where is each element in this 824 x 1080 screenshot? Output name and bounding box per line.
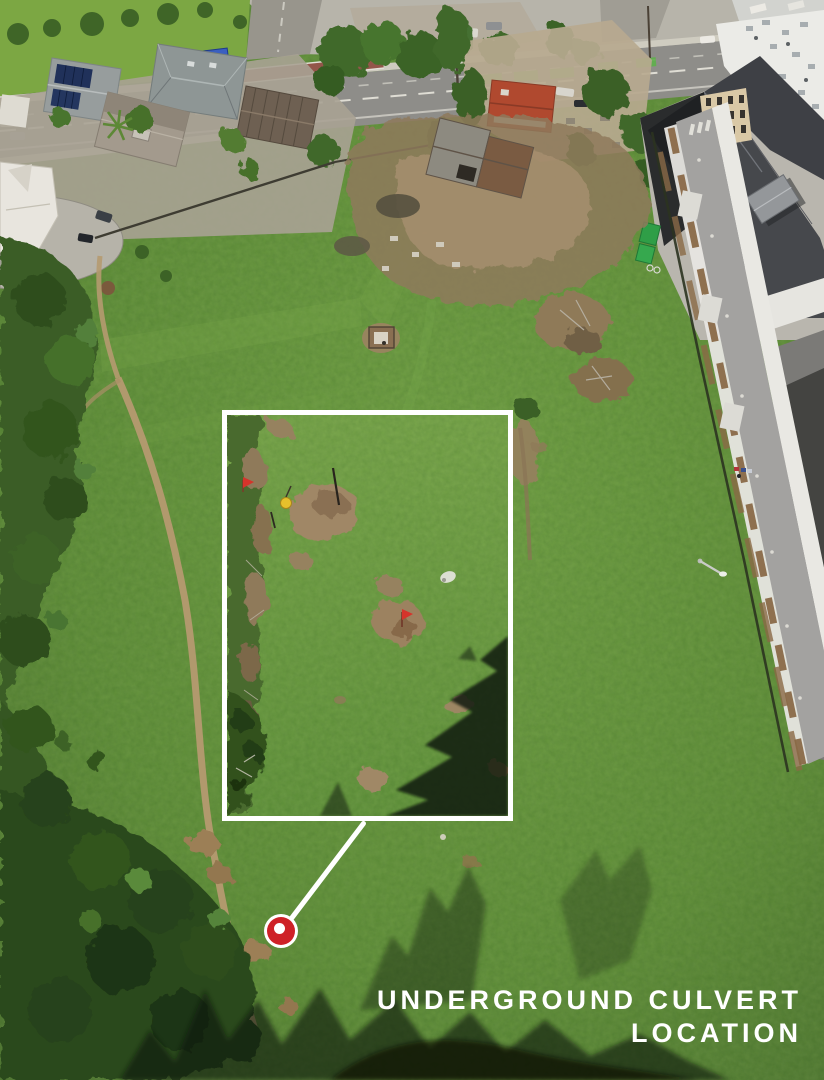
aerial-scene [0,0,824,1080]
aerial-photo: UNDERGROUND CULVERT LOCATION [0,0,824,1080]
marker-red-ring [267,917,295,945]
caption-line-1: UNDERGROUND CULVERT [377,984,802,1017]
caption-line-2: LOCATION [377,1017,802,1050]
culvert-location-marker [264,914,298,948]
marker-center-dot [274,923,285,934]
well-structure [362,323,400,353]
inset-zoom-content [227,412,508,816]
caption: UNDERGROUND CULVERT LOCATION [377,984,802,1050]
